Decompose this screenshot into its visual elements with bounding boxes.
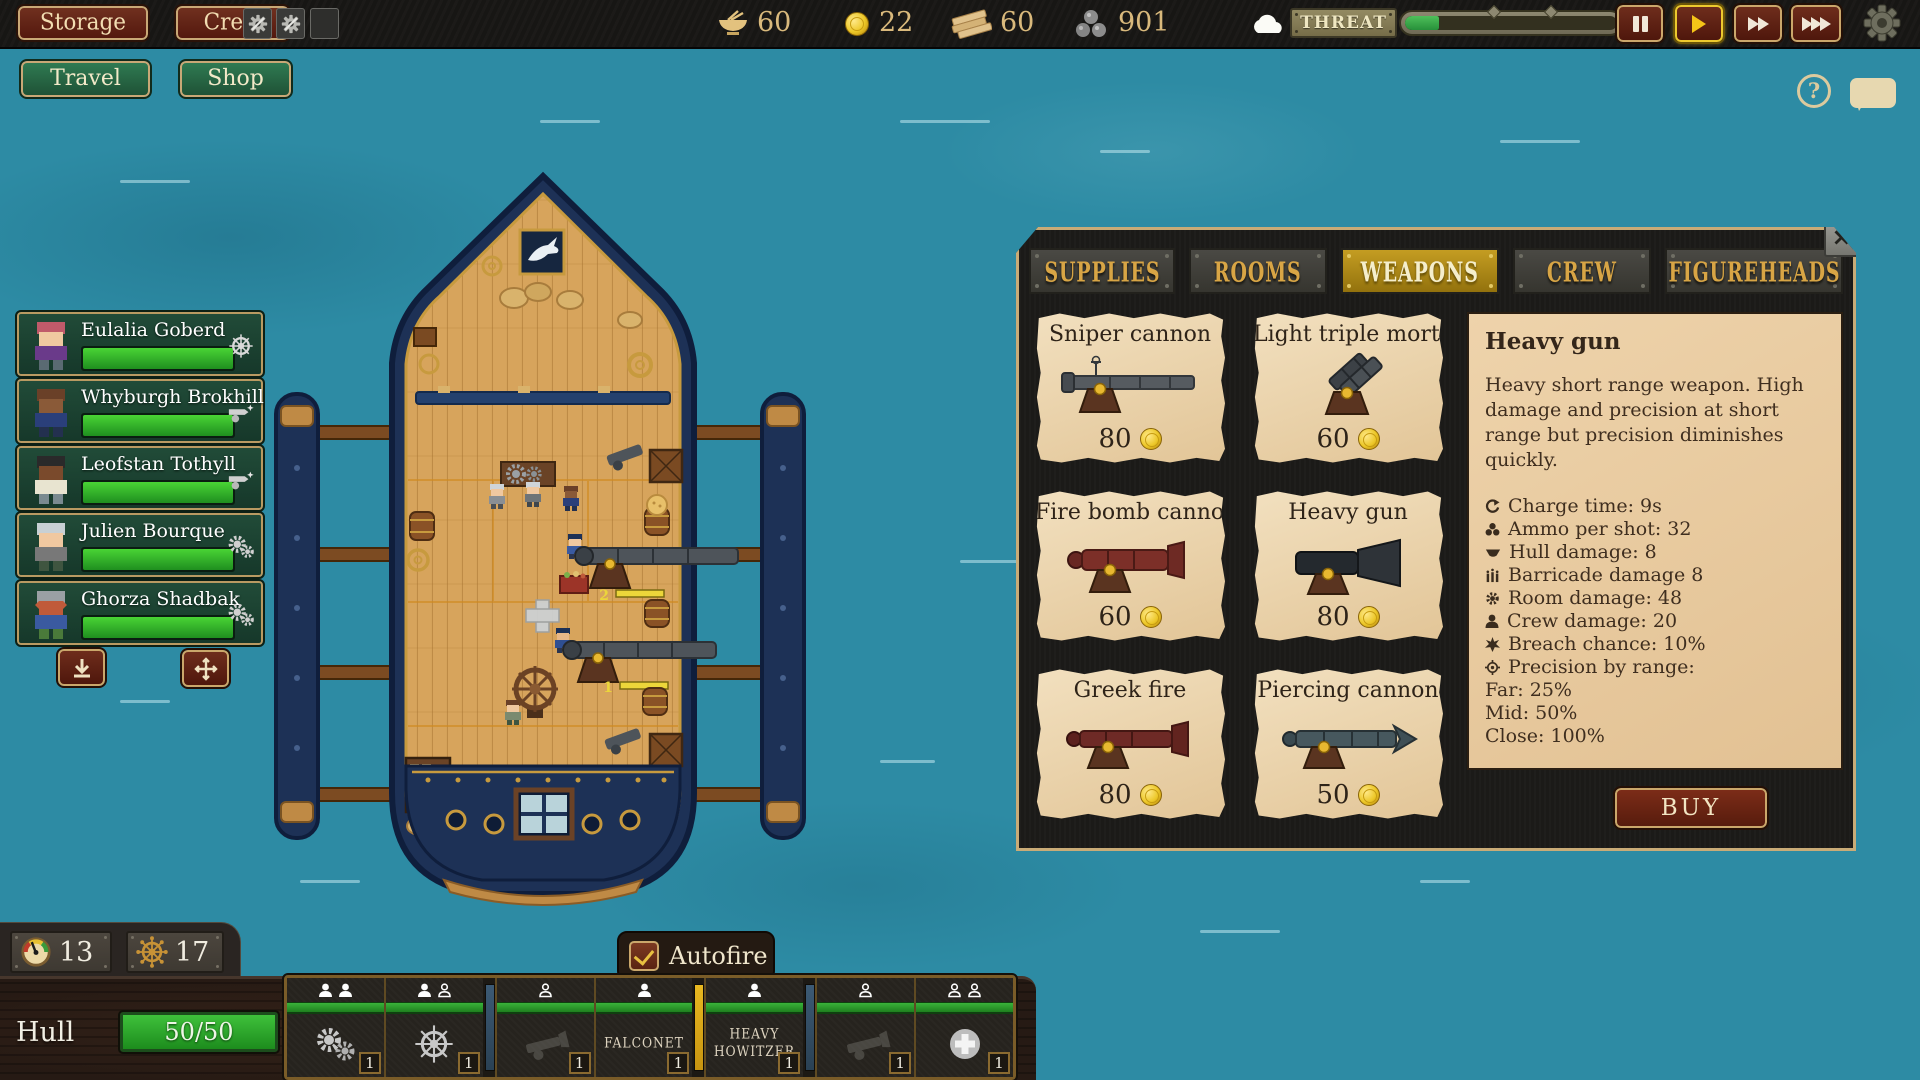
crew-card-leofstan[interactable]: Leofstan Tothyll	[17, 446, 263, 510]
threat-label: THREAT	[1300, 13, 1387, 33]
tab-weapons-label: WEAPONS	[1361, 255, 1479, 288]
gold-coin-icon	[1358, 606, 1380, 628]
slot-cannon-empty-2[interactable]: 1	[815, 978, 914, 1077]
slot-count: 1	[889, 1052, 911, 1074]
crew-card-whyburgh[interactable]: Whyburgh Brokhill	[17, 379, 263, 443]
travel-button-label: Travel	[50, 66, 121, 91]
tab-figureheads-label: FIGUREHEADS	[1668, 255, 1840, 288]
item-card-light-triple-mortar[interactable]: Light triple mortar 60	[1253, 312, 1443, 464]
slot-count: 1	[988, 1052, 1010, 1074]
ship-wheel-icon	[136, 936, 168, 968]
item-price: 60	[1098, 602, 1131, 632]
crew-health-bar	[81, 615, 235, 640]
stat-text: Room damage: 48	[1508, 587, 1682, 610]
gear-wrench-icon	[248, 14, 268, 34]
hull-bar: 50/50	[120, 1012, 278, 1052]
greek-fire-image	[1050, 706, 1210, 776]
cannonball-icon	[1074, 8, 1108, 40]
range-mid: Mid: 50%	[1485, 702, 1825, 725]
maneuver-stat-value: 17	[175, 937, 209, 968]
item-price: 60	[1316, 424, 1349, 454]
crew-avatar	[33, 322, 69, 370]
travel-button[interactable]: Travel	[21, 61, 150, 97]
storage-button[interactable]: Storage	[18, 6, 148, 40]
gold-coin-icon	[845, 12, 869, 36]
gold-count: 22	[879, 7, 913, 38]
slot-falconet[interactable]: FALCONET 1	[594, 978, 693, 1077]
buy-button[interactable]: BUY	[1615, 788, 1767, 828]
crew-health-bar	[81, 413, 235, 438]
ship-wheel-icon	[227, 332, 255, 360]
item-price: 80	[1098, 424, 1131, 454]
shop-button-label: Shop	[207, 66, 264, 91]
marlin-flag-icon	[520, 230, 564, 274]
add-crew-icon	[947, 1026, 983, 1062]
crew-filled-icon	[318, 983, 333, 998]
tab-rooms-label: ROOMS	[1214, 255, 1302, 288]
slot-heavy-howitzer[interactable]: HEAVY HOWITZER 1	[704, 978, 803, 1077]
crew-card-eulalia[interactable]: Eulalia Goberd	[17, 312, 263, 376]
item-price: 50	[1316, 780, 1349, 810]
room-damage-icon	[1485, 591, 1500, 606]
crew-filled-icon	[417, 983, 432, 998]
precision-icon	[1485, 660, 1500, 675]
crew-empty-icon	[947, 983, 962, 998]
item-price: 80	[1098, 780, 1131, 810]
threat-label-plaque: THREAT	[1290, 8, 1397, 38]
slot-engine[interactable]: 1	[287, 978, 384, 1077]
gears-icon	[227, 601, 255, 629]
selection-bracket	[1241, 621, 1274, 654]
sniper-cannon-image	[1050, 350, 1210, 420]
detail-description: Heavy short range weapon. High damage an…	[1485, 373, 1825, 473]
gear-wrench-icon	[281, 14, 301, 34]
pontoon-right	[762, 394, 804, 838]
gears-icon	[227, 533, 255, 561]
cannon-charge-count-2: 1	[603, 680, 613, 696]
item-name: Fire bomb cannon	[1035, 500, 1225, 525]
download-arrow-icon	[71, 657, 93, 679]
threat-meter	[1399, 10, 1623, 36]
cannonball-count: 901	[1118, 7, 1170, 38]
close-icon[interactable]: ×	[1824, 222, 1859, 257]
hull-value: 50/50	[123, 1018, 275, 1046]
weather-cloud-icon	[1249, 11, 1291, 37]
side-tab-sell-label: SELL	[971, 698, 1002, 775]
item-detail-panel: Heavy gun Heavy short range weapon. High…	[1467, 312, 1843, 770]
detail-title: Heavy gun	[1485, 328, 1825, 355]
tab-supplies-label: SUPPLIES	[1044, 255, 1160, 288]
crew-name: Whyburgh Brokhill	[81, 386, 241, 408]
stat-text: Hull damage: 8	[1509, 541, 1657, 564]
collapse-crew-list-button[interactable]	[58, 649, 105, 686]
item-card-fire-bomb-cannon[interactable]: Fire bomb cannon 60	[1035, 490, 1225, 642]
slot-count: 1	[359, 1052, 381, 1074]
slot-cannon-empty-1[interactable]: 1	[495, 978, 594, 1077]
gold-coin-icon	[1140, 428, 1162, 450]
selection-bracket	[1422, 621, 1455, 654]
gold-coin-icon	[1140, 784, 1162, 806]
gauge-icon	[20, 936, 52, 968]
storage-button-label: Storage	[40, 7, 126, 39]
cannon-charge-bar-1	[616, 590, 664, 597]
breach-chance-icon	[1485, 637, 1500, 652]
crew-empty-icon	[437, 983, 452, 998]
cannon-icon	[227, 466, 255, 494]
cannon-ghost-icon	[841, 1028, 891, 1060]
item-name: Heavy gun	[1253, 500, 1443, 525]
tab-supplies[interactable]: SUPPLIES	[1029, 248, 1175, 294]
item-name: Sniper cannon	[1035, 322, 1225, 347]
crew-health-bar	[81, 346, 235, 371]
pause-button[interactable]	[1617, 5, 1663, 42]
crew-button[interactable]: Crew	[176, 6, 289, 40]
shop-panel: SUPPLIES ROOMS WEAPONS CREW FIGUREHEADS …	[1016, 227, 1856, 851]
wood-count: 60	[1000, 7, 1034, 38]
stat-text: Crew damage: 20	[1507, 610, 1677, 633]
wood-planks-icon	[950, 8, 992, 40]
slot-separator-yellow	[692, 978, 704, 1077]
crew-empty-icon	[538, 983, 553, 998]
cannon-charge-count-1: 2	[599, 588, 609, 604]
weapon-slot-bar: 1 1 1	[284, 975, 1016, 1080]
charge-time-icon	[1485, 499, 1500, 514]
light-triple-mortar-image	[1268, 350, 1428, 420]
fastest-forward-button[interactable]	[1791, 5, 1841, 42]
item-name: Piercing cannon	[1253, 678, 1443, 703]
tab-figureheads[interactable]: FIGUREHEADS	[1665, 248, 1843, 294]
speed-stat-plaque: 13	[10, 931, 112, 973]
crew-name: Julien Bourque	[81, 520, 241, 542]
gears-icon	[313, 1026, 357, 1062]
crew-damage-icon	[1485, 614, 1499, 629]
player-ship[interactable]: 2 1	[268, 168, 848, 908]
autofire-label: Autofire	[669, 942, 768, 970]
item-card-heavy-gun[interactable]: Heavy gun 80	[1253, 490, 1443, 642]
barricade	[416, 392, 670, 404]
piercing-cannon-image	[1268, 706, 1428, 776]
item-name: Light triple mortar	[1253, 322, 1443, 347]
play-button[interactable]	[1675, 5, 1723, 42]
slot-add-crew[interactable]: 1	[914, 978, 1013, 1077]
play-icon	[1692, 15, 1706, 33]
range-far: Far: 25%	[1485, 679, 1825, 702]
crew-filled-icon	[637, 983, 652, 998]
hull-damage-icon	[1485, 546, 1501, 560]
gold-coin-icon	[1358, 428, 1380, 450]
side-tab-upgrade[interactable]: UPGRADE	[962, 481, 1012, 643]
hull-label: Hull	[16, 1017, 74, 1048]
move-arrows-icon	[194, 657, 218, 681]
side-tab-upgrade-label: UPGRADE	[971, 488, 1002, 635]
side-tab-buy[interactable]: BUY	[962, 309, 1012, 457]
crew-card-ghorza[interactable]: Ghorza Shadbak	[17, 581, 263, 645]
slot-weapon-label: FALCONET	[604, 1035, 684, 1053]
tab-rooms[interactable]: ROOMS	[1189, 248, 1327, 294]
game-screen: Storage Crew 60 22 60	[0, 0, 1920, 1080]
tab-crew[interactable]: CREW	[1513, 248, 1651, 294]
gold-coin-icon	[1358, 784, 1380, 806]
ammo-icon	[1485, 522, 1500, 537]
stat-text: Precision by range:	[1508, 656, 1695, 679]
crew-name: Ghorza Shadbak	[81, 588, 241, 610]
side-tab-buy-label: BUY	[971, 352, 1002, 415]
food-count: 60	[757, 7, 791, 38]
shop-button[interactable]: Shop	[180, 61, 291, 97]
chat-bubble-icon[interactable]	[1850, 78, 1896, 108]
ship-stats-panel: 13 17	[0, 922, 241, 982]
tab-crew-label: CREW	[1547, 255, 1617, 288]
crew-empty-icon	[858, 983, 873, 998]
autofire-checkbox[interactable]	[629, 941, 659, 971]
cannon-icon	[227, 399, 255, 427]
slot-count: 1	[667, 1052, 689, 1074]
crew-health-bar	[81, 480, 235, 505]
item-card-greek-fire[interactable]: Greek fire 80	[1035, 668, 1225, 820]
crew-name: Eulalia Goberd	[81, 319, 241, 341]
selection-bracket	[1422, 478, 1455, 511]
crew-avatar	[33, 389, 69, 437]
supply-crate	[560, 571, 588, 593]
crew-avatar	[33, 591, 69, 639]
threat-fill	[1405, 16, 1439, 30]
buy-button-label: BUY	[1661, 795, 1721, 821]
crew-card-julien[interactable]: Julien Bourque	[17, 513, 263, 577]
tab-weapons[interactable]: WEAPONS	[1341, 248, 1499, 294]
fire-bomb-cannon-image	[1050, 528, 1210, 598]
stat-text: Barricade damage 8	[1508, 564, 1703, 587]
crew-filled-icon	[338, 983, 353, 998]
tool-gear-button-1[interactable]	[243, 8, 272, 39]
crew-avatar	[33, 523, 69, 571]
heavy-gun-image	[1268, 528, 1428, 598]
item-name: Greek fire	[1035, 678, 1225, 703]
crew-health-bar	[81, 547, 235, 572]
top-bar: Storage Crew 60 22 60	[0, 0, 1920, 49]
item-card-sniper-cannon[interactable]: Sniper cannon 80	[1035, 312, 1225, 464]
food-bowl-icon	[716, 10, 750, 36]
fast-forward-button[interactable]	[1734, 5, 1782, 42]
stat-text: Breach chance: 10%	[1508, 633, 1706, 656]
item-card-piercing-cannon[interactable]: Piercing cannon 50	[1253, 668, 1443, 820]
help-label: ?	[1808, 78, 1820, 103]
tool-gear-button-2[interactable]	[276, 8, 305, 39]
crew-empty-icon	[967, 983, 982, 998]
help-button[interactable]: ?	[1797, 74, 1831, 108]
slot-separator-blue	[483, 978, 495, 1077]
barricade-damage-icon	[1485, 568, 1500, 583]
slot-count: 1	[569, 1052, 591, 1074]
move-panel-button[interactable]	[182, 650, 229, 687]
stat-text: Charge time: 9s	[1508, 495, 1662, 518]
crew-filled-icon	[747, 983, 762, 998]
range-close: Close: 100%	[1485, 725, 1825, 748]
slot-separator-blue	[803, 978, 815, 1077]
cannon-ghost-icon	[520, 1028, 570, 1060]
selection-bracket	[1241, 478, 1274, 511]
autofire-toggle[interactable]: Autofire	[617, 931, 775, 981]
speed-stat-value: 13	[59, 937, 93, 968]
crew-avatar	[33, 456, 69, 504]
pontoon-left	[276, 394, 318, 838]
ship-wheel-icon	[413, 1023, 455, 1065]
gold-coin-icon	[1140, 606, 1162, 628]
slot-helm[interactable]: 1	[384, 978, 483, 1077]
tool-empty-slot[interactable]	[310, 8, 339, 39]
maneuver-stat-plaque: 17	[126, 931, 224, 973]
settings-gear-icon[interactable]	[1862, 3, 1902, 43]
side-tab-sell[interactable]: SELL	[962, 671, 1012, 801]
slot-count: 1	[778, 1052, 800, 1074]
crew-name: Leofstan Tothyll	[81, 453, 241, 475]
item-price: 80	[1316, 602, 1349, 632]
slot-count: 1	[458, 1052, 480, 1074]
stat-text: Ammo per shot: 32	[1508, 518, 1691, 541]
